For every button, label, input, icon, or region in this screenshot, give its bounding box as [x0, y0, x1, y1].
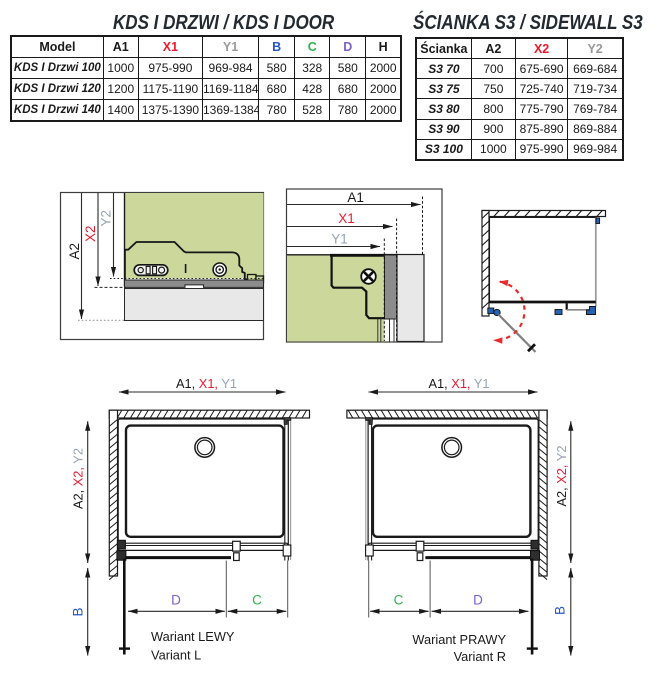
svg-text:A1, X1, Y1: A1, X1, Y1 — [176, 376, 237, 391]
svg-text:Variant L: Variant L — [151, 648, 201, 663]
svg-text:D: D — [473, 593, 483, 608]
svg-text:A2, X2, Y2: A2, X2, Y2 — [71, 448, 86, 509]
svg-text:B: B — [71, 607, 86, 616]
svg-text:Variant R: Variant R — [454, 649, 506, 664]
svg-text:Y2: Y2 — [99, 210, 114, 227]
svg-text:A2: A2 — [67, 243, 82, 260]
svg-text:Y1: Y1 — [331, 232, 348, 247]
svg-text:C: C — [394, 593, 404, 608]
svg-text:Wariant LEWY: Wariant LEWY — [151, 629, 235, 644]
svg-text:C: C — [252, 593, 262, 608]
svg-text:Wariant PRAWY: Wariant PRAWY — [412, 632, 506, 647]
svg-text:D: D — [171, 593, 181, 608]
svg-text:B: B — [553, 606, 568, 615]
svg-text:A2, X2, Y2: A2, X2, Y2 — [554, 446, 569, 507]
svg-text:X2: X2 — [83, 225, 98, 242]
svg-text:X1: X1 — [338, 211, 355, 226]
svg-text:A1, X1, Y1: A1, X1, Y1 — [429, 376, 490, 391]
svg-text:A1: A1 — [347, 190, 364, 205]
